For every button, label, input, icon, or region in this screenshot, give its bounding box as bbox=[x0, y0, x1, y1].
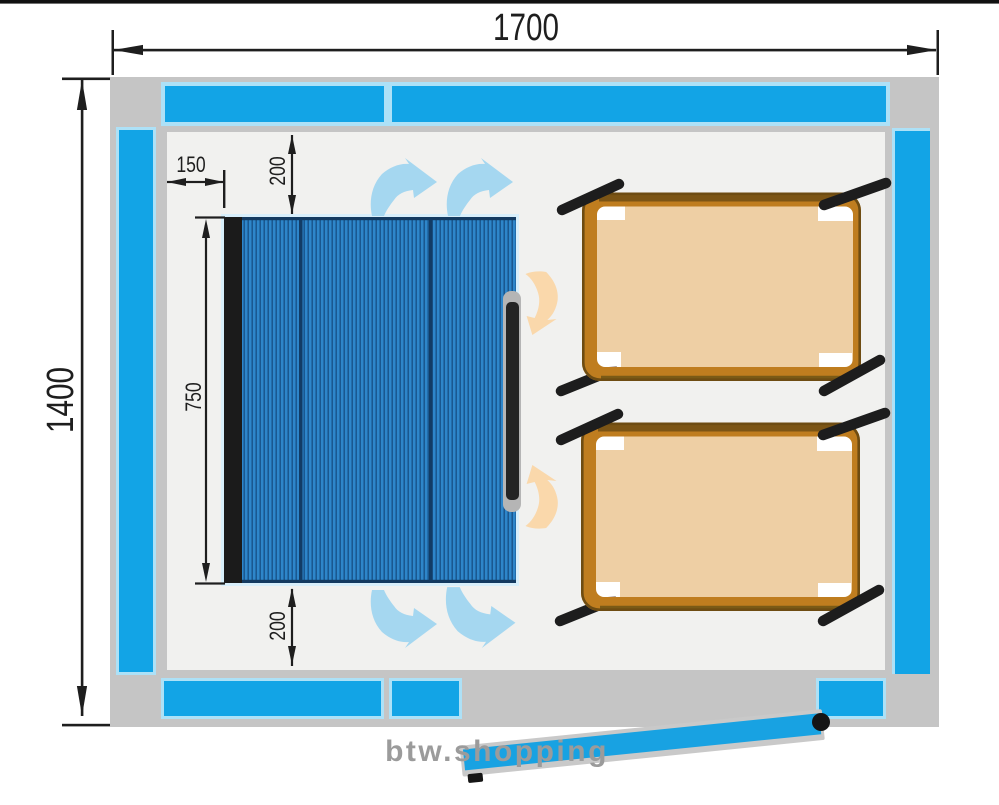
svg-text:1400: 1400 bbox=[40, 367, 82, 433]
svg-text:200: 200 bbox=[266, 611, 290, 640]
svg-text:750: 750 bbox=[182, 382, 206, 411]
svg-text:200: 200 bbox=[266, 156, 290, 185]
svg-text:1700: 1700 bbox=[493, 7, 559, 49]
svg-text:150: 150 bbox=[176, 153, 205, 177]
svg-text:btw.shopping: btw.shopping bbox=[385, 735, 609, 768]
